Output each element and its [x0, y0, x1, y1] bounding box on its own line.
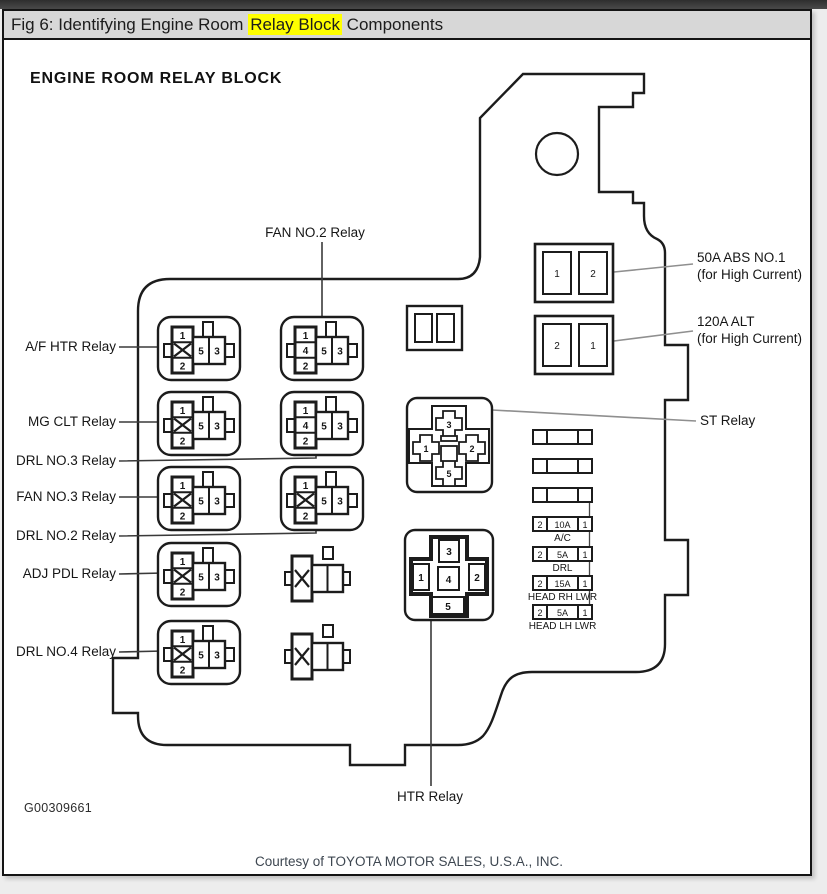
- svg-text:5: 5: [321, 422, 327, 433]
- svg-text:4: 4: [303, 421, 309, 432]
- relay-htr: 31425HTR Relay: [397, 530, 493, 804]
- mounting-hole: [536, 133, 578, 175]
- svg-text:1: 1: [423, 444, 428, 454]
- svg-text:5: 5: [198, 651, 204, 662]
- label-alt-2: (for High Current): [697, 331, 802, 346]
- svg-text:4: 4: [303, 346, 309, 357]
- label-af-htr: A/F HTR Relay: [25, 339, 116, 354]
- svg-text:2: 2: [303, 362, 309, 373]
- svg-text:2: 2: [180, 666, 186, 677]
- svg-text:3: 3: [337, 347, 343, 358]
- svg-text:3: 3: [337, 422, 343, 433]
- svg-text:1: 1: [582, 520, 587, 530]
- label-abs-no1-1: 50A ABS NO.1: [697, 250, 786, 265]
- svg-text:1: 1: [180, 481, 186, 492]
- svg-text:5A: 5A: [557, 608, 568, 618]
- svg-text:3: 3: [446, 547, 452, 558]
- label-drl-no2: DRL NO.2 Relay: [16, 528, 116, 543]
- svg-text:2: 2: [180, 588, 186, 599]
- svg-text:5A: 5A: [557, 550, 568, 560]
- label-fan-no3: FAN NO.3 Relay: [16, 489, 116, 504]
- svg-text:10A: 10A: [554, 520, 570, 530]
- svg-text:1: 1: [303, 331, 309, 342]
- svg-text:5: 5: [198, 573, 204, 584]
- label-adj-pdl: ADJ PDL Relay: [23, 566, 117, 581]
- svg-text:1: 1: [180, 635, 186, 646]
- svg-text:2: 2: [474, 573, 480, 584]
- label-fan-no2: FAN NO.2 Relay: [265, 225, 365, 240]
- svg-text:1: 1: [582, 579, 587, 589]
- svg-text:5: 5: [198, 347, 204, 358]
- svg-text:2: 2: [590, 269, 596, 280]
- svg-text:3: 3: [214, 347, 220, 358]
- svg-text:3: 3: [214, 573, 220, 584]
- svg-text:2: 2: [537, 579, 542, 589]
- svg-text:2: 2: [537, 608, 542, 618]
- relay-af-htr: 1253A/F HTR Relay: [25, 317, 240, 380]
- mini-relay-1: [285, 547, 350, 601]
- mini-relay-2: [285, 625, 350, 679]
- svg-text:1: 1: [582, 550, 587, 560]
- svg-text:3: 3: [214, 497, 220, 508]
- svg-text:4: 4: [446, 575, 452, 586]
- svg-text:2: 2: [554, 341, 560, 352]
- svg-text:2: 2: [469, 444, 474, 454]
- svg-text:1: 1: [180, 331, 186, 342]
- svg-text:1: 1: [303, 481, 309, 492]
- svg-text:1: 1: [418, 573, 424, 584]
- mini-fuse-ac: 210A1A/C: [533, 517, 592, 544]
- svg-text:2: 2: [537, 520, 542, 530]
- svg-text:1: 1: [180, 406, 186, 417]
- label-htr: HTR Relay: [397, 789, 463, 804]
- label-head-lh-lwr: HEAD LH LWR: [529, 621, 597, 632]
- svg-text:5: 5: [321, 497, 327, 508]
- relay-fan-no3: 1253FAN NO.3 Relay: [16, 467, 240, 530]
- label-drl-no3: DRL NO.3 Relay: [16, 453, 116, 468]
- relay-mg-clt: 1253MG CLT Relay: [28, 392, 240, 455]
- svg-text:2: 2: [180, 512, 186, 523]
- mini-fuse-head-lh-lwr: 25A1HEAD LH LWR: [529, 605, 597, 632]
- label-drl-no4: DRL NO.4 Relay: [16, 644, 116, 659]
- svg-text:5: 5: [198, 422, 204, 433]
- label-abs-no1-2: (for High Current): [697, 267, 802, 282]
- svg-text:5: 5: [445, 602, 451, 613]
- label-st: ST Relay: [700, 413, 756, 428]
- svg-text:3: 3: [214, 651, 220, 662]
- svg-text:3: 3: [337, 497, 343, 508]
- label-drl: DRL: [552, 563, 572, 574]
- label-ac: A/C: [554, 533, 571, 544]
- label-head-rh-lwr: HEAD RH LWR: [528, 592, 597, 603]
- svg-text:2: 2: [303, 512, 309, 523]
- label-mg-clt: MG CLT Relay: [28, 414, 116, 429]
- svg-text:1: 1: [582, 608, 587, 618]
- svg-text:15A: 15A: [554, 579, 570, 589]
- svg-text:5: 5: [446, 469, 451, 479]
- svg-text:5: 5: [198, 497, 204, 508]
- svg-text:1: 1: [590, 341, 596, 352]
- relay-fan-no2: 14253FAN NO.2 Relay: [265, 225, 365, 380]
- fuse-abs-no1: 1250A ABS NO.1(for High Current): [535, 244, 802, 302]
- mini-fuse-head-rh-lwr: 215A1HEAD RH LWR: [528, 576, 597, 603]
- svg-text:2: 2: [180, 437, 186, 448]
- svg-text:3: 3: [214, 422, 220, 433]
- mini-fuse-drl: 25A1DRL: [533, 547, 592, 574]
- svg-text:2: 2: [180, 362, 186, 373]
- label-alt-1: 120A ALT: [697, 314, 755, 329]
- svg-text:2: 2: [537, 550, 542, 560]
- svg-text:1: 1: [180, 557, 186, 568]
- svg-text:3: 3: [446, 420, 451, 430]
- svg-text:1: 1: [554, 269, 560, 280]
- relay-block-diagram: 1253A/F HTR Relay14253FAN NO.2 Relay1253…: [0, 0, 827, 894]
- svg-text:5: 5: [321, 347, 327, 358]
- svg-text:2: 2: [303, 437, 309, 448]
- svg-text:1: 1: [303, 406, 309, 417]
- empty-connector: [407, 306, 462, 350]
